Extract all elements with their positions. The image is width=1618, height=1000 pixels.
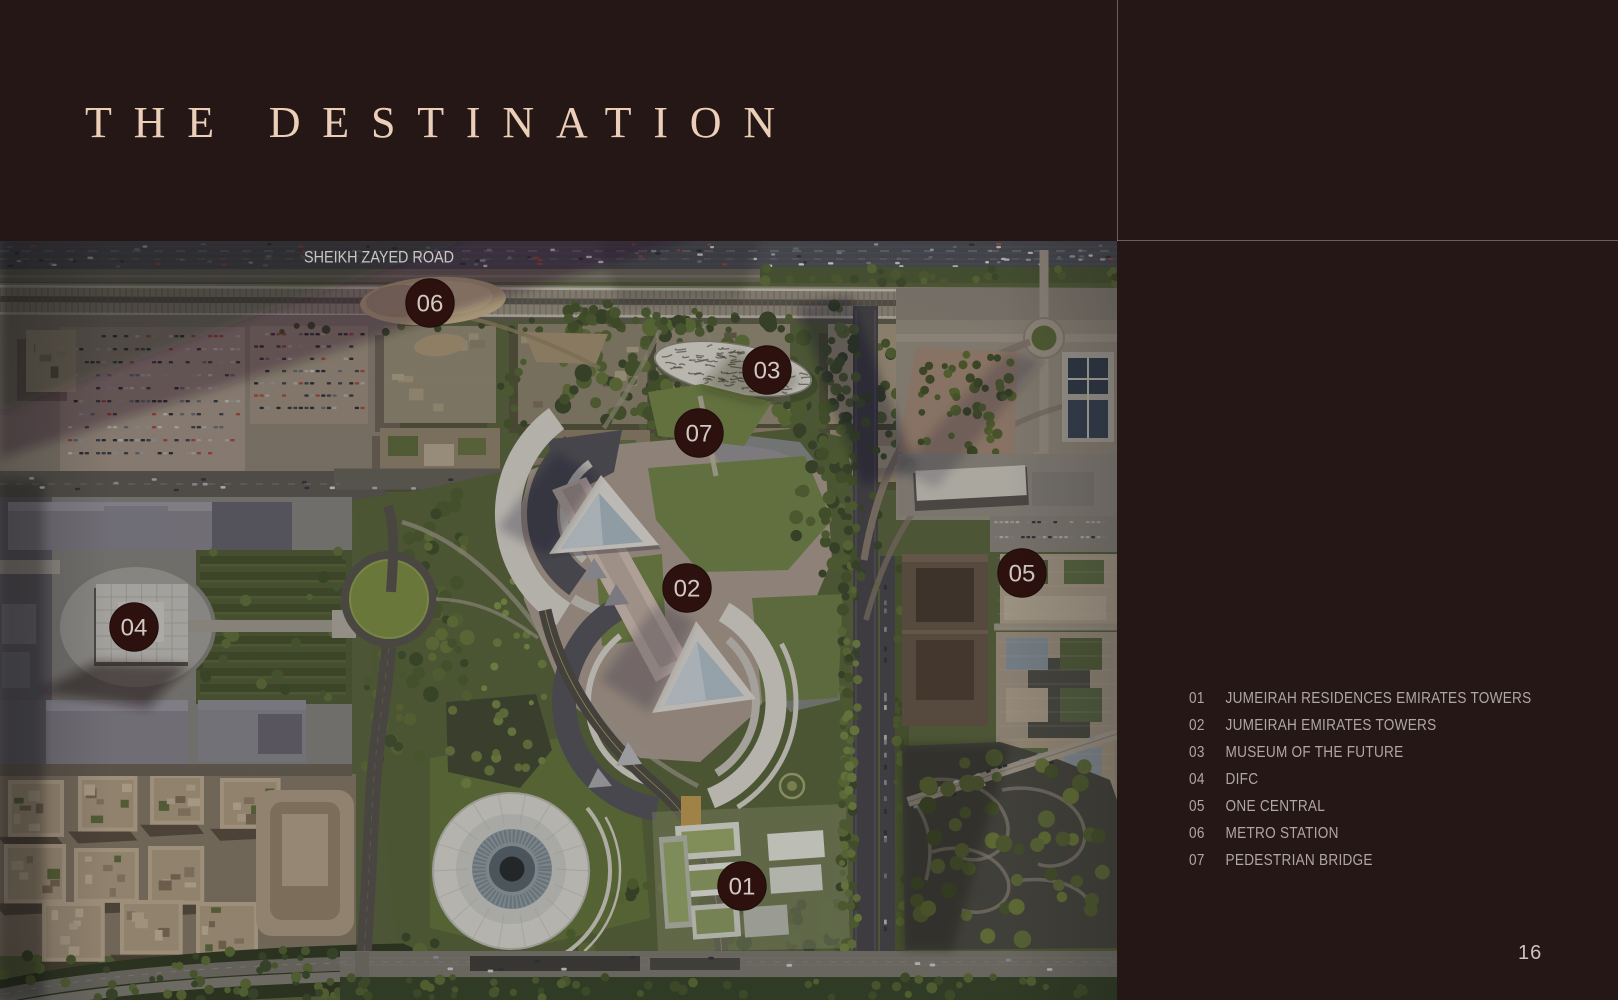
svg-text:04: 04 <box>121 615 148 642</box>
svg-text:06: 06 <box>417 291 444 318</box>
svg-text:SHEIKH ZAYED ROAD: SHEIKH ZAYED ROAD <box>304 248 454 267</box>
svg-text:02: 02 <box>674 576 701 603</box>
svg-text:03: 03 <box>754 358 781 385</box>
svg-text:05: 05 <box>1009 561 1036 588</box>
svg-text:01: 01 <box>729 874 756 901</box>
svg-text:07: 07 <box>686 421 713 448</box>
